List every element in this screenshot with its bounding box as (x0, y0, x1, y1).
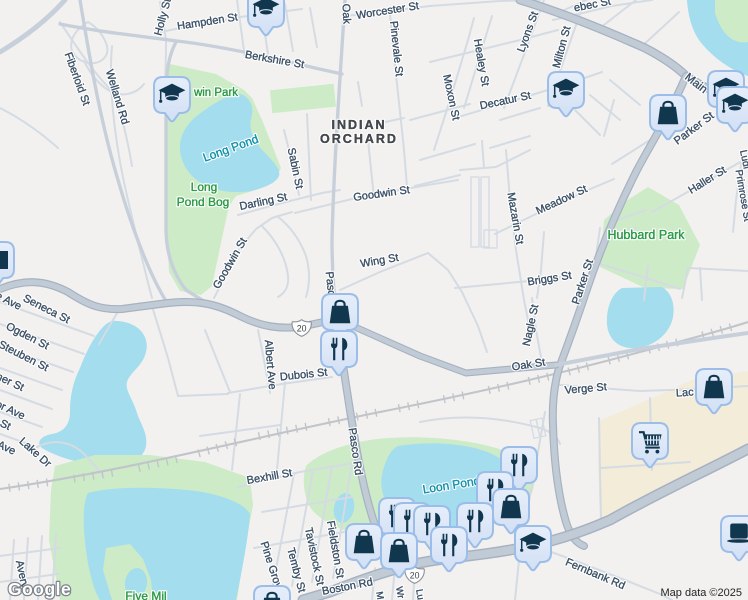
svg-text:Wr: Wr (393, 586, 406, 600)
svg-text:win Park: win Park (193, 87, 238, 99)
svg-text:Lu: Lu (413, 588, 426, 600)
svg-text:ORCHARD: ORCHARD (320, 132, 398, 146)
svg-text:M: M (373, 591, 385, 600)
svg-text:Hubbard Park: Hubbard Park (607, 228, 685, 242)
svg-text:Long: Long (191, 180, 218, 194)
svg-text:Pond Bog: Pond Bog (177, 195, 230, 209)
svg-text:Oak: Oak (339, 3, 352, 24)
svg-text:Map data ©2025: Map data ©2025 (661, 587, 743, 599)
svg-text:Five Mil: Five Mil (125, 589, 166, 600)
svg-text:Google: Google (8, 579, 71, 599)
svg-text:Lac: Lac (676, 386, 695, 399)
svg-text:INDIAN: INDIAN (331, 118, 386, 132)
